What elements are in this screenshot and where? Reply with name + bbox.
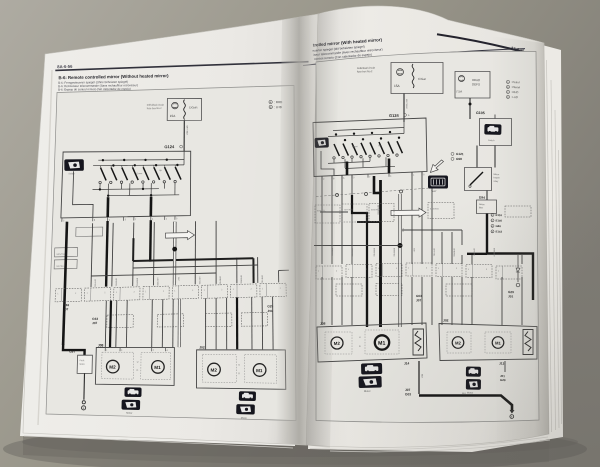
svg-text:J01: J01 [267,309,273,313]
svg-text:fuse box No.2: fuse box No.2 [357,70,373,73]
svg-text:fuse box No.2: fuse box No.2 [147,107,162,110]
svg-text:8A-6-56: 8A-6-56 [57,64,73,69]
svg-text:7.5A: 7.5A [456,90,462,94]
svg-text:M1: M1 [256,368,263,373]
svg-text:M2: M2 [109,365,116,370]
svg-text:J07: J07 [92,321,97,325]
svg-text:15A: 15A [170,114,176,118]
svg-text:WHT/BLK: WHT/BLK [405,99,407,109]
svg-text:B: B [270,105,272,109]
svg-text:G124: G124 [389,113,400,118]
svg-text:GRN/RED: GRN/RED [219,276,221,285]
svg-text:"B-6": "B-6" [431,190,437,193]
svg-text:C/GMR: C/GMR [189,105,198,109]
svg-text:PWR: PWR [80,360,85,362]
svg-text:J07: J07 [63,307,69,311]
svg-text:Motor: Motor [126,412,132,415]
svg-text:GRY/YEL: GRY/YEL [94,279,96,287]
svg-text:G97: G97 [69,350,75,354]
svg-text:Motor: Motor [241,417,247,420]
svg-text:GRN/YEL: GRN/YEL [260,275,262,283]
svg-text:G105: G105 [476,111,485,115]
svg-text:A: A [270,100,272,104]
svg-text:BRN/YEL: BRN/YEL [115,278,117,286]
svg-text:G124: G124 [164,144,175,149]
svg-text:BRN/RED: BRN/RED [239,275,241,284]
svg-text:Down: Down [352,146,358,148]
svg-text:MIRR: MIRR [79,364,85,366]
svg-text:DEFO: DEFO [472,82,481,86]
svg-text:J02: J02 [199,346,205,350]
svg-text:Switch: Switch [68,172,75,175]
svg-text:Down: Down [137,173,143,175]
svg-text:D94: D94 [479,196,485,200]
svg-text:GRY/RED: GRY/RED [156,277,158,286]
svg-text:M1: M1 [154,365,161,370]
svg-text:GRY/YEL: GRY/YEL [198,276,200,284]
svg-text:G98: G98 [456,157,462,161]
svg-text:BRN/RED: BRN/RED [135,278,137,287]
svg-text:15A: 15A [394,84,401,88]
svg-text:WHT/BLK: WHT/BLK [185,125,187,135]
svg-text:GRY/BLU: GRY/BLU [56,266,65,268]
svg-text:G121: G121 [456,152,464,156]
svg-text:J08: J08 [98,343,104,347]
svg-text:C/Gar: C/Gar [418,77,426,81]
svg-text:M2: M2 [210,368,217,373]
